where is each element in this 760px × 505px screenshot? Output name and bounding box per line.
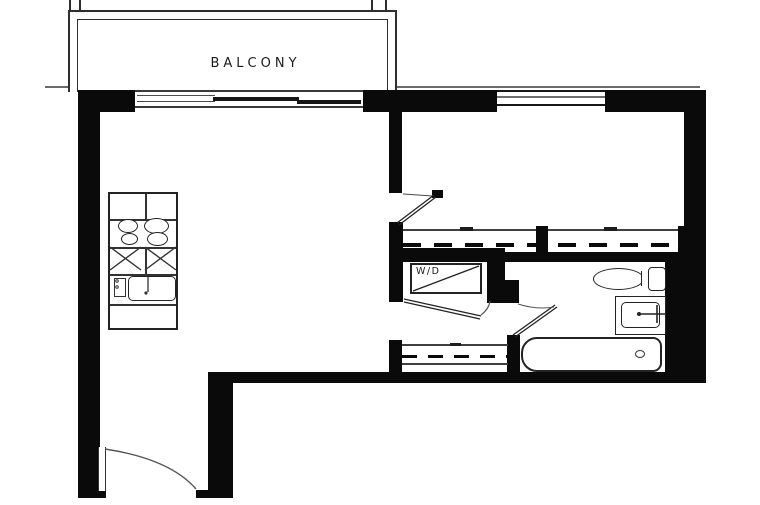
bedroom-window	[497, 90, 605, 106]
wall-bedroom-partition	[389, 92, 402, 193]
wall-left	[78, 90, 100, 498]
area-bathroom	[522, 265, 662, 370]
wall-bathroom-lower-post	[507, 335, 520, 377]
wall-top-middle	[363, 90, 497, 112]
balcony-sliding-door	[135, 90, 363, 108]
wall-entry-left	[78, 490, 106, 498]
balcony-wall-stub-4	[385, 0, 387, 11]
bedroom-window-glass-line	[497, 96, 605, 98]
balcony-wall-stub-1	[69, 0, 71, 11]
area-entry	[105, 335, 205, 485]
sliding-door-panel-2	[297, 100, 361, 104]
closet-right-post	[678, 226, 688, 262]
wall-bottom-main	[208, 372, 706, 383]
balcony-railing: BALCONY	[68, 10, 397, 92]
wall-entry-column	[208, 372, 233, 498]
balcony-wall-stub-3	[371, 0, 373, 11]
area-hallway	[235, 230, 503, 370]
wall-right-bathroom	[665, 253, 706, 383]
area-bedroom	[405, 115, 680, 225]
floor-plan: BALCONY	[0, 0, 760, 505]
closet-door-tick-2	[604, 227, 617, 231]
sliding-door-fixed-pane	[137, 95, 215, 102]
wall-entry-right	[196, 490, 233, 498]
balcony-wall-stub-2	[79, 0, 81, 11]
balcony-label: BALCONY	[70, 56, 395, 71]
sliding-door-panel-1	[213, 97, 299, 101]
wall-top-left	[78, 90, 135, 112]
closet-mid-post	[536, 226, 548, 262]
